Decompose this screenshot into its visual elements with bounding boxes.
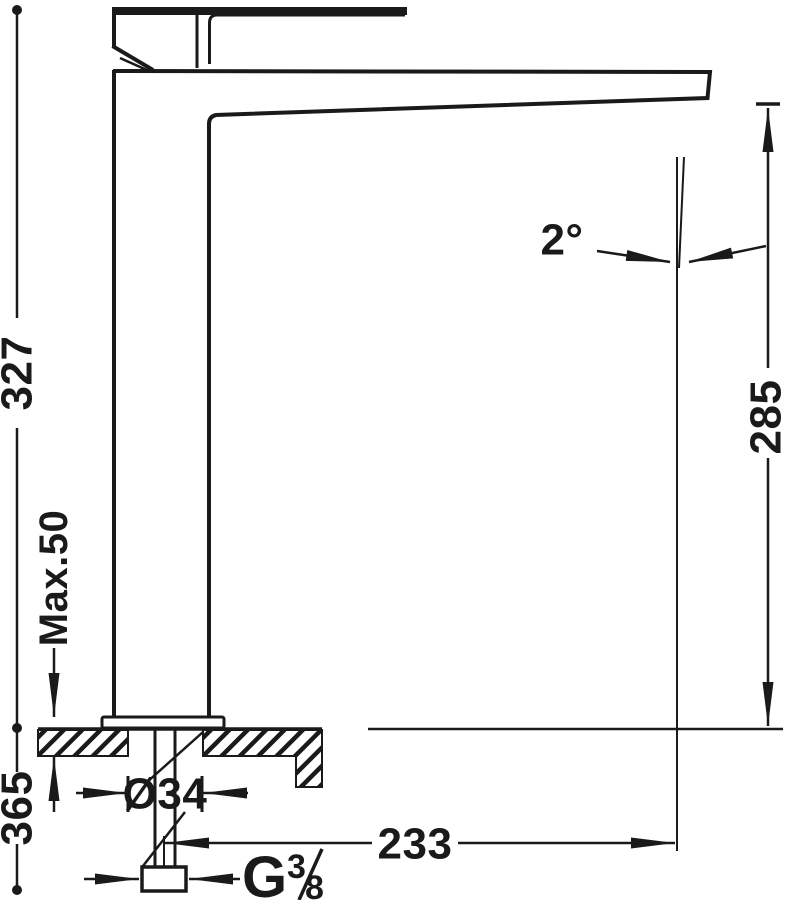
angle-arrow-left [597,251,670,262]
dimension-label-max-deck-thickness: Max.50 [32,510,76,646]
thread-label-numerator: 3 [287,848,306,886]
countertop-hatch-right [203,730,322,787]
countertop-hatch-left [38,730,128,756]
dimension-label-spout-reach: 233 [378,820,453,869]
dimension-label-spout-angle: 2° [540,216,583,265]
dimension-connection-thread: G 3 8 [84,845,324,900]
technical-drawing-canvas: 327 365 Max.50 Ø34 233 [0,0,790,900]
faucet-lever-underside [210,15,406,64]
dimension-spout-reach: 233 [164,820,675,869]
hose-connector-end [142,867,186,891]
faucet-base-plate [102,717,224,728]
faucet-lever-chamfer [113,46,154,70]
tilted-angle-line [679,157,684,268]
faucet-dimension-diagram: 327 365 Max.50 Ø34 233 [0,0,790,900]
dimension-label-below-deck-depth: 365 [0,771,42,846]
dimension-label-spout-outlet-height: 285 [742,380,790,455]
dim-dot-top [12,5,22,15]
dimension-spout-outlet-height: 285 [742,104,790,726]
dimension-below-deck-depth: 365 [0,730,42,895]
faucet-outline [102,7,710,728]
dimension-label-base-diameter: Ø34 [123,770,208,819]
dimension-max-deck-thickness: Max.50 [32,510,76,812]
dimension-label-overall-height: 327 [0,336,42,411]
dimension-spout-angle: 2° [540,157,766,851]
dimension-base-diameter: Ø34 [76,770,248,819]
thread-label-letter: G [242,845,288,900]
thread-label-denominator: 8 [305,869,324,900]
angle-arrow-right [689,246,766,262]
faucet-spout-profile [113,71,710,717]
